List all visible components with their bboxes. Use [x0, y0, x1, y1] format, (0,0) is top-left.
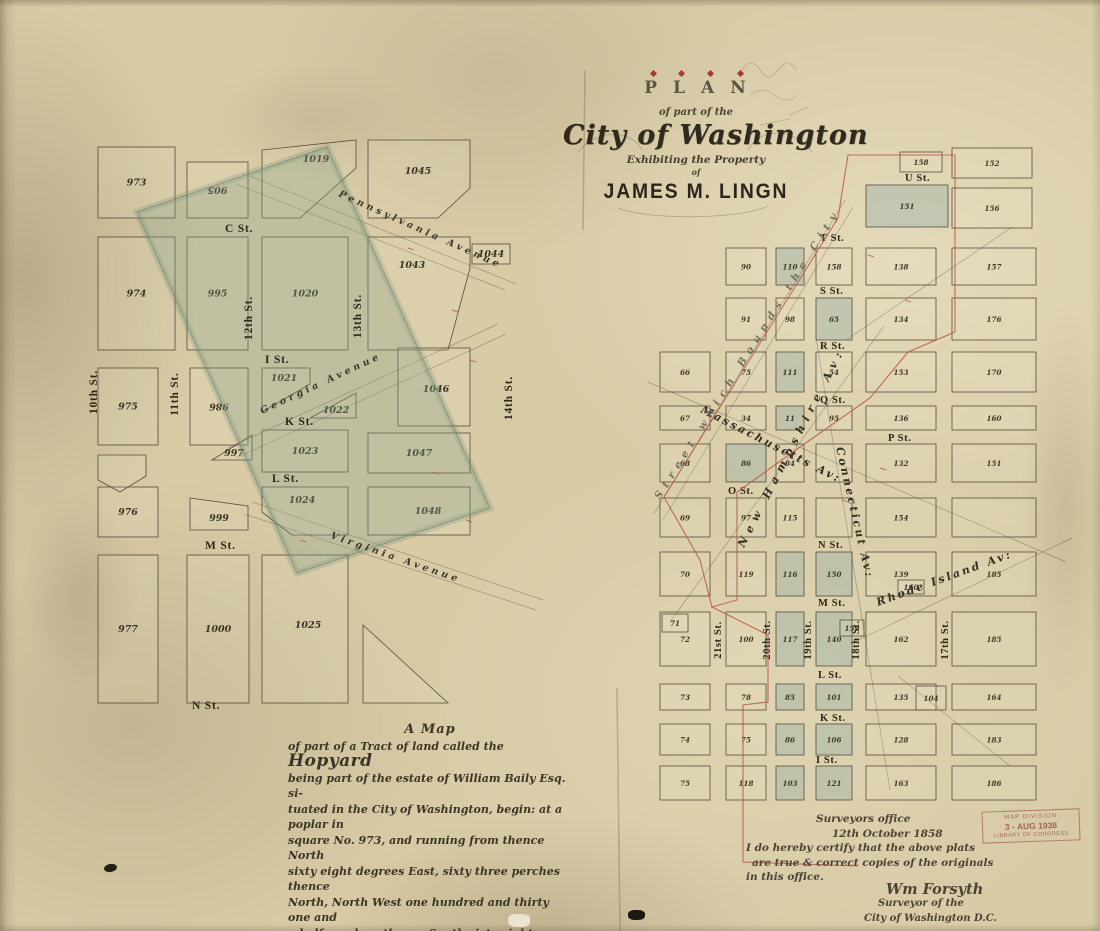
survey-note-heading: A Map	[288, 722, 572, 738]
street-label: 10th St.	[88, 370, 100, 414]
square-number: 116	[782, 570, 797, 579]
square-number: 66	[680, 368, 690, 377]
square-number: 1043	[399, 260, 426, 271]
square-number: 75	[680, 779, 690, 788]
survey-note-line: a half perches, thence South sixty eight…	[288, 926, 572, 931]
title-block: PLAN of part of the City of Washington E…	[563, 72, 829, 204]
square-number: 78	[741, 693, 751, 702]
plan-letter: N	[730, 78, 748, 98]
square-number: 132	[893, 459, 908, 468]
square-number: 151	[899, 202, 914, 211]
paper-chip	[508, 914, 530, 927]
street-label: 12th St.	[243, 296, 255, 340]
square-number: 162	[893, 635, 908, 644]
square-number: 91	[741, 315, 751, 324]
certifier-title-line: Surveyor of the	[878, 897, 1010, 912]
street-label: I St.	[265, 354, 289, 366]
square-number: 86	[785, 736, 795, 745]
street-label: K St.	[820, 713, 846, 724]
street-label: C St.	[225, 223, 253, 235]
square-number: 67	[680, 414, 690, 423]
square-number: 139	[893, 570, 908, 579]
street-label: 11th St.	[169, 372, 181, 415]
square-number: 976	[118, 507, 138, 518]
square-number: 160	[986, 414, 1001, 423]
street-label: 19th St.	[803, 620, 814, 659]
square-number: 118	[738, 779, 753, 788]
square-number: 157	[986, 263, 1001, 272]
street-label: I St.	[816, 755, 838, 766]
street-label: K St.	[285, 416, 314, 428]
square-number: 176	[986, 315, 1001, 324]
square-number: 121	[826, 779, 841, 788]
street-label: P St.	[888, 433, 911, 444]
square-number: 111	[782, 368, 797, 377]
plan-letter: P	[644, 78, 659, 98]
square-number: 85	[785, 693, 795, 702]
certifier-title: Surveyor of theCity of Washington D.C.	[738, 897, 1010, 926]
street-label: N St.	[818, 540, 843, 551]
plan-title: PLAN	[563, 72, 829, 98]
street-label: L St.	[272, 473, 299, 485]
square-number: 98	[785, 315, 795, 324]
street-label: 21st St.	[713, 621, 724, 658]
street-label: M St.	[818, 598, 846, 609]
square-number: 73	[680, 693, 690, 702]
square-number: 170	[986, 368, 1001, 377]
square-number: 1045	[405, 166, 432, 177]
map-sheet: 9739051019104510449749951020104397598610…	[0, 0, 1100, 931]
street-label: O St.	[728, 486, 754, 497]
square-number: 158	[913, 158, 928, 167]
street-label: 17th St.	[940, 620, 951, 659]
certifier-title-line: City of Washington D.C.	[864, 912, 1010, 927]
square-number: 185	[986, 635, 1001, 644]
certification-body: Surveyors office12th October 1858I do he…	[738, 812, 1010, 885]
square-number: 185	[986, 570, 1001, 579]
survey-note-line: square No. 973, and running from thence …	[288, 833, 572, 864]
survey-note: A Map of part of a Tract of land called …	[288, 722, 572, 931]
square-number: 138	[893, 263, 908, 272]
square-number: 152	[984, 159, 999, 168]
square-number: 151	[986, 459, 1001, 468]
square-number: 72	[680, 635, 690, 644]
square-number: 977	[118, 624, 138, 635]
square-number: 183	[986, 736, 1001, 745]
street-label: S St.	[820, 286, 843, 297]
street-label: U St.	[905, 173, 930, 184]
certifier-signature: Wm Forsyth	[886, 883, 1010, 898]
street-label: 13th St.	[352, 294, 364, 338]
plan-letter: L	[673, 78, 687, 98]
square-number: 103	[782, 779, 797, 788]
dimension-tick	[470, 360, 476, 362]
square-number: 128	[893, 736, 908, 745]
square-number: 186	[986, 779, 1001, 788]
square-number: 104	[923, 694, 938, 703]
owner-name: JAMES M. LINGN	[574, 180, 819, 204]
square-number: 101	[826, 693, 841, 702]
square-number: 1025	[295, 620, 322, 631]
title-subline: of part of the	[563, 107, 829, 118]
square-number: 134	[893, 315, 908, 324]
square-number: 86	[741, 459, 751, 468]
square-number: 999	[209, 513, 229, 524]
square-number: 100	[738, 635, 753, 644]
square-number: 1000	[205, 624, 232, 635]
square-number: 156	[984, 204, 999, 213]
square-number: 65	[829, 315, 839, 324]
survey-note-line: sixty eight degrees East, sixty three pe…	[288, 864, 572, 895]
square-number: 106	[826, 736, 841, 745]
street-label: L St.	[818, 670, 842, 681]
square-number: 95	[829, 414, 839, 423]
square-number: 74	[680, 736, 690, 745]
street-label: M St.	[205, 540, 236, 552]
square-number: 90	[741, 263, 751, 272]
survey-note-body: of part of a Tract of land called the Ho…	[288, 739, 572, 931]
square-number: 117	[782, 635, 797, 644]
square-number: 71	[670, 619, 680, 628]
certification-line: I do hereby certify that the above plats	[746, 841, 1010, 856]
title-subline: of	[563, 167, 829, 177]
certification-note: Surveyors office12th October 1858I do he…	[738, 812, 1010, 926]
square-number: 975	[118, 402, 138, 413]
certification-line: are true & correct copies of the origina…	[752, 856, 1010, 871]
fold-seam	[617, 688, 620, 931]
city-square	[952, 498, 1036, 537]
square-number: 158	[826, 263, 841, 272]
square-number: 140	[826, 635, 841, 644]
square-number: 154	[893, 514, 908, 523]
city-title: City of Washington	[563, 120, 829, 151]
survey-note-line: of part of a Tract of land called the Ho…	[288, 739, 572, 771]
street-label: N St.	[192, 700, 220, 712]
square-number: 974	[127, 289, 147, 300]
ink-blot	[628, 910, 645, 920]
city-square	[98, 455, 146, 492]
square-number: 136	[893, 414, 908, 423]
square-number: 69	[680, 514, 690, 523]
square-number: 70	[680, 570, 690, 579]
square-number: 153	[893, 368, 908, 377]
square-number: 115	[782, 514, 797, 523]
tract-name: Hopyard	[288, 751, 373, 771]
city-square	[368, 140, 470, 218]
square-number: 150	[826, 570, 841, 579]
square-number: 973	[127, 178, 147, 189]
title-subline: Exhibiting the Property	[563, 154, 829, 166]
square-number: 164	[986, 693, 1001, 702]
square-number: 119	[738, 570, 753, 579]
square-number: 163	[893, 779, 908, 788]
square-number: 11	[785, 414, 795, 423]
plan-letter: A	[701, 78, 716, 98]
street-label: 18th St.	[851, 620, 862, 659]
city-square	[363, 625, 448, 703]
survey-note-line: being part of the estate of William Bail…	[288, 771, 572, 802]
survey-note-line: tuated in the City of Washington, begin:…	[288, 802, 572, 833]
library-stamp: MAP DIVISION 3 - AUG 1938 LIBRARY OF CON…	[981, 808, 1080, 843]
square-number: 135	[893, 693, 908, 702]
street-label: 14th St.	[503, 376, 515, 420]
